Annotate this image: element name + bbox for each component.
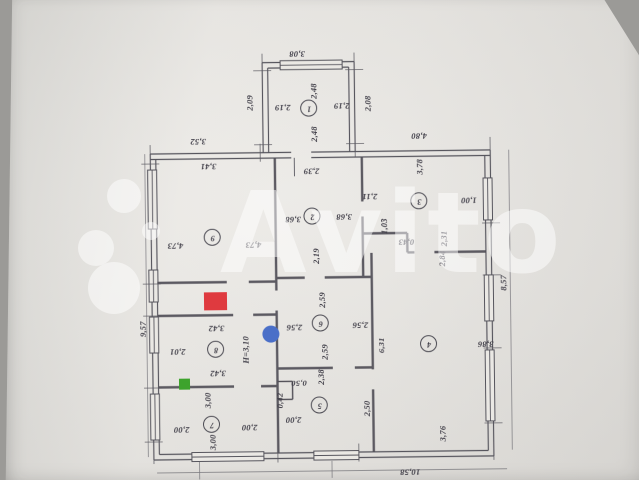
room-number-circle: 3 [410, 192, 427, 209]
dimension-label: 2,56 [352, 321, 368, 330]
room-number-circle: 2 [303, 207, 320, 224]
dimension-label: 2,19 [312, 248, 321, 264]
dimension-label: 3,42 [210, 369, 226, 378]
dimension-label: 4,80 [411, 131, 427, 140]
dimension-label: 2,38 [317, 369, 326, 385]
dimension-label: 0,50 [291, 379, 307, 388]
dimension-label: 2,56 [286, 323, 302, 332]
dimension-label: 3,41 [200, 162, 216, 171]
room-number: 3 [417, 197, 421, 205]
dimension-label: 2,84 [438, 251, 447, 267]
dimension-label: 3,76 [438, 426, 447, 442]
dimension-label: 2,00 [242, 424, 258, 433]
dimension-label: 2,31 [440, 231, 449, 247]
floor-plan: 3,082,482,192,192,482,092,083,524,803,41… [0, 0, 639, 480]
dimension-label: 3,52 [190, 137, 206, 146]
room-number: 6 [318, 319, 322, 327]
room-number: 9 [210, 233, 214, 241]
dimension-label: 2,00 [286, 416, 302, 425]
dimension-label: 0,42 [276, 393, 285, 409]
dimension-label: 2,01 [170, 347, 186, 356]
dimension-label: 3,86 [478, 340, 494, 349]
blue-dot-marker [262, 325, 279, 342]
dimension-label: 0,43 [398, 238, 414, 247]
dimension-label: 2,08 [363, 96, 372, 112]
room-number-circle: 1 [300, 100, 317, 117]
dimension-label: 3,00 [204, 392, 213, 408]
room-number-circle: 8 [207, 341, 224, 358]
dimension-label: 3,78 [415, 159, 424, 175]
dimension-label: H=3,10 [241, 336, 250, 364]
room-number: 5 [317, 401, 321, 409]
dimension-label: 8,57 [499, 275, 508, 291]
room-number-circle: 4 [420, 335, 437, 352]
room-number-circle: 5 [311, 396, 328, 413]
dimension-label: 1,03 [380, 218, 389, 234]
dimension-label: 4,73 [245, 240, 261, 249]
dimension-label: 2,50 [363, 401, 372, 417]
dimension-label: 9,57 [139, 321, 148, 337]
room-number: 8 [214, 345, 218, 353]
dimension-label: 3,08 [289, 50, 305, 59]
dimension-label: 3,68 [285, 215, 301, 224]
green-square-marker [179, 379, 190, 390]
dimension-label: 3,42 [208, 324, 224, 333]
dimension-label: 3,68 [336, 212, 352, 221]
dimension-label: 2,59 [320, 344, 329, 360]
room-number-circle: 7 [203, 416, 220, 433]
room-number: 2 [310, 212, 314, 220]
dimension-label: 2,39 [304, 167, 320, 176]
room-number-circle: 9 [204, 229, 221, 246]
dimension-label: 1,00 [461, 196, 477, 205]
room-number: 1 [307, 104, 311, 112]
dimension-label: 4,73 [167, 241, 183, 250]
dimension-label: 10,58 [400, 468, 420, 477]
dimension-label: 2,19 [334, 101, 350, 110]
dimension-label: 2,19 [275, 103, 291, 112]
room-number: 4 [426, 340, 430, 348]
dimension-label: 2,48 [309, 83, 318, 99]
dimension-label: 2,09 [245, 95, 254, 111]
room-number: 7 [209, 420, 213, 428]
dimension-label: 2,59 [318, 292, 327, 308]
dimension-label: 2,00 [174, 425, 190, 434]
dimension-label: 2,48 [310, 126, 319, 142]
floorplan-photo: 3,082,482,192,192,482,092,083,524,803,41… [0, 0, 639, 480]
dimension-label: 6,31 [377, 337, 386, 353]
room-number-circle: 6 [312, 314, 329, 331]
dimension-label: 3,00 [208, 434, 217, 450]
red-square-marker [204, 292, 227, 310]
dimension-label: 2,11 [362, 192, 377, 201]
